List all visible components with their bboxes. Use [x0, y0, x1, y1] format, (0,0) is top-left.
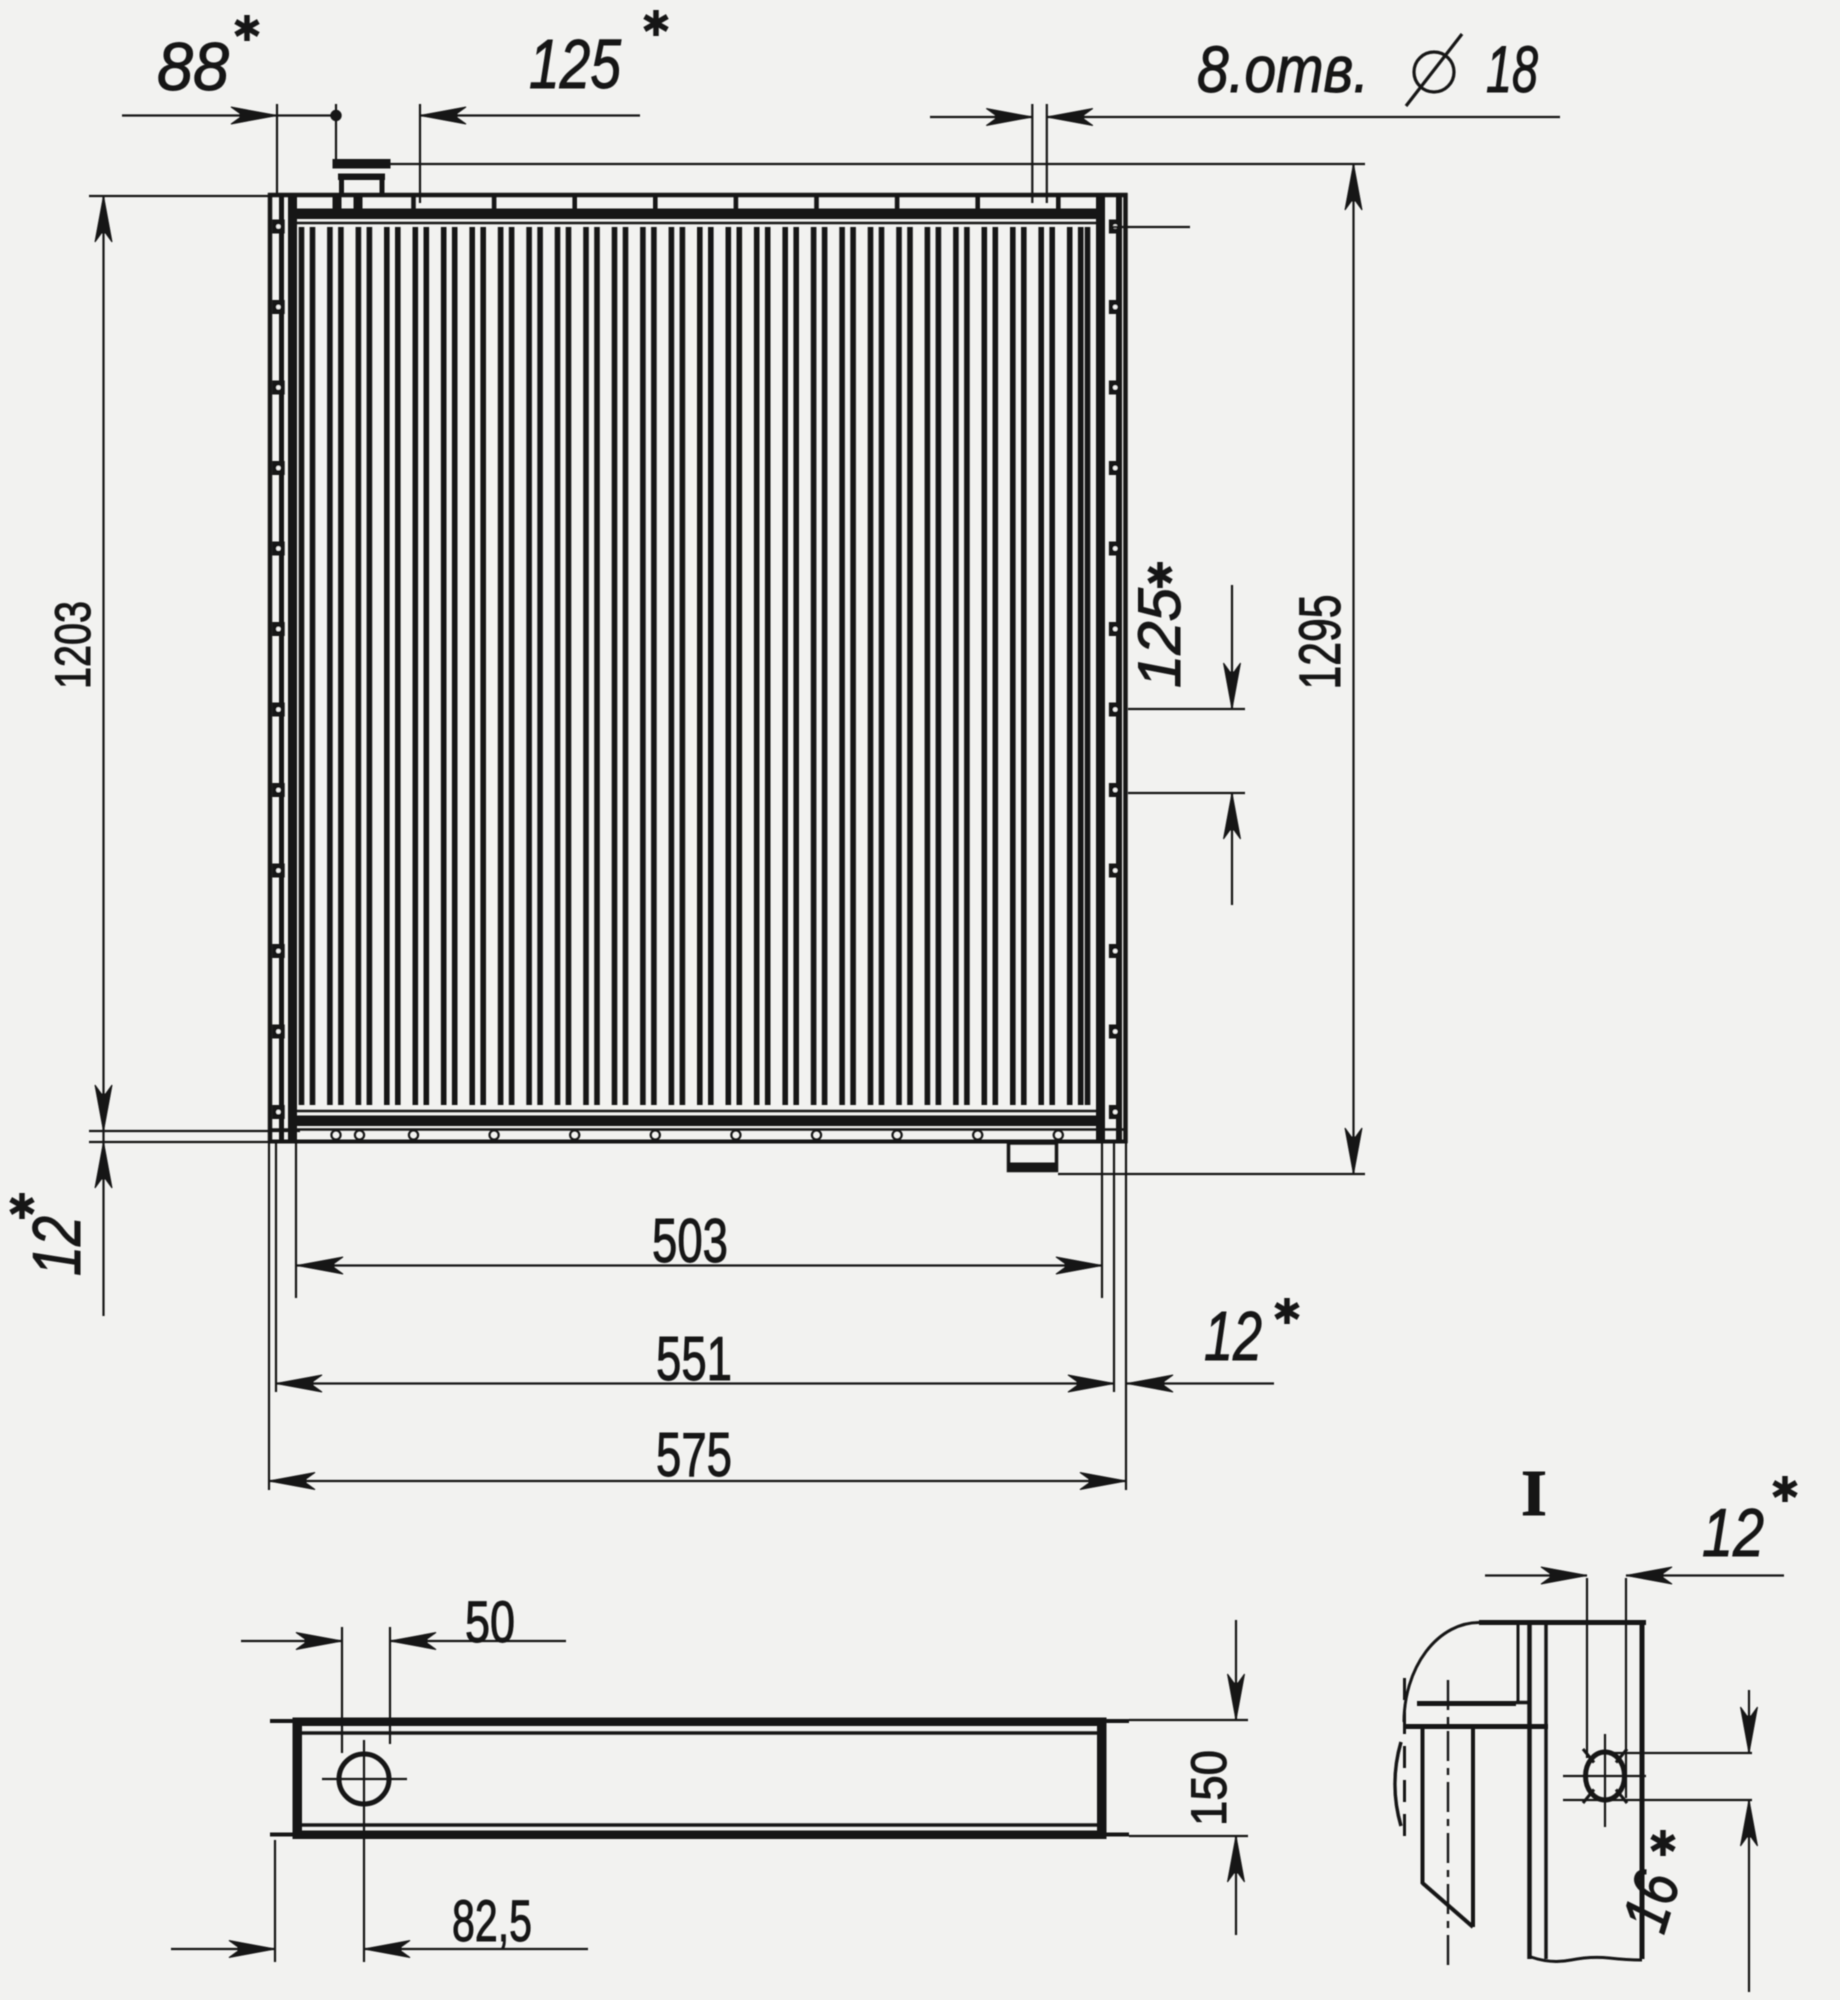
- svg-text:18: 18: [1486, 32, 1538, 106]
- svg-text:1203: 1203: [45, 601, 101, 689]
- svg-text:575: 575: [656, 1421, 732, 1490]
- svg-text:88: 88: [157, 29, 229, 105]
- svg-text:150: 150: [1181, 1750, 1237, 1826]
- svg-text:125: 125: [529, 25, 622, 103]
- svg-text:503: 503: [652, 1207, 728, 1276]
- svg-text:12: 12: [1702, 1495, 1764, 1571]
- svg-text:8.отв.: 8.отв.: [1197, 32, 1369, 106]
- svg-text:82,5: 82,5: [452, 1889, 532, 1954]
- svg-text:12: 12: [1204, 1297, 1262, 1375]
- svg-text:50: 50: [465, 1590, 515, 1655]
- svg-text:I: I: [1521, 1457, 1547, 1530]
- svg-text:551: 551: [656, 1325, 732, 1394]
- svg-text:1295: 1295: [1288, 595, 1353, 690]
- svg-text:12: 12: [19, 1216, 95, 1276]
- svg-text:125: 125: [1126, 587, 1193, 688]
